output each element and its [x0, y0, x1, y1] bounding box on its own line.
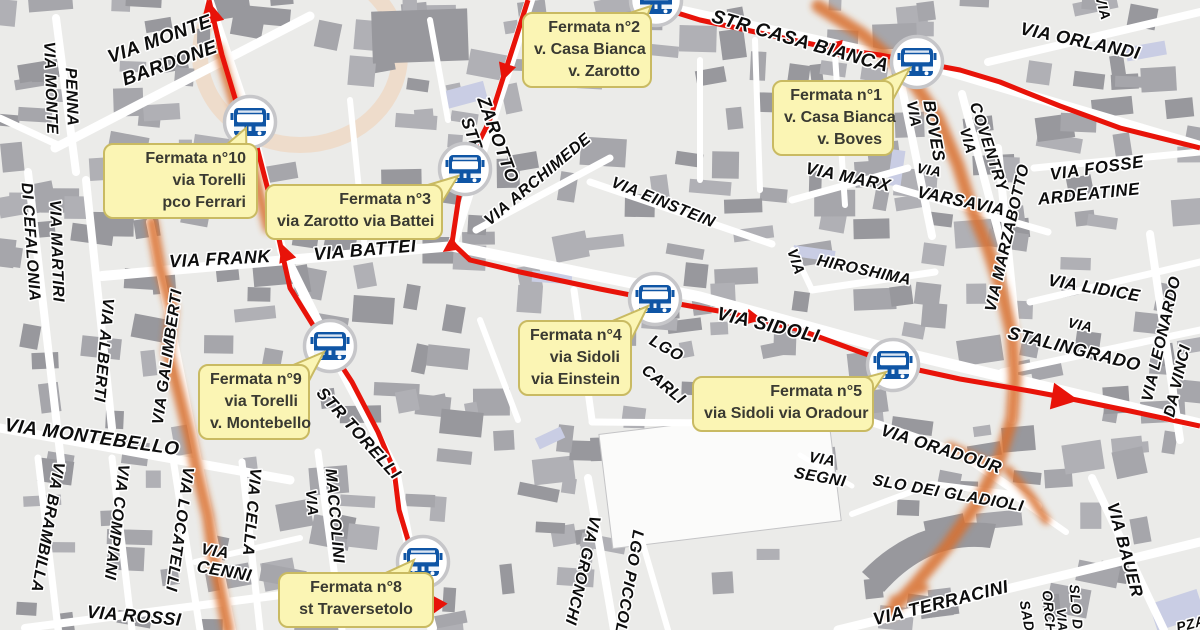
- stop-callout: Fermata n°1v. Casa Biancav. Boves: [772, 80, 894, 156]
- stop-callout-line: v. Zarotto: [534, 61, 640, 83]
- stop-callout-line: via Einstein: [530, 369, 620, 391]
- stop-callout-line: v. Montebello: [210, 413, 298, 435]
- stop-callout: Fermata n°9via Torelliv. Montebello: [198, 364, 310, 440]
- stop-callout-line: Fermata n°9: [210, 369, 298, 391]
- stop-callout-line: Fermata n°8: [290, 577, 422, 599]
- stop-callout-line: via Sidoli via Oradour: [704, 403, 862, 425]
- stop-callout-line: pco Ferrari: [115, 192, 246, 214]
- street-label: VIA: [1054, 608, 1071, 630]
- map-canvas: VIA MONTEBARDONEVIA MONTEPENNAVIA MARTIR…: [0, 0, 1200, 630]
- stop-callout-line: Fermata n°5: [704, 381, 862, 403]
- stop-callout-line: Fermata n°4: [530, 325, 620, 347]
- stop-callout-line: via Torelli: [210, 391, 298, 413]
- stop-callout: Fermata n°10via Torellipco Ferrari: [103, 143, 258, 219]
- stop-callout-line: Fermata n°2: [534, 17, 640, 39]
- street-label: VIA MARTIRI: [46, 200, 67, 303]
- stop-callout: Fermata n°5via Sidoli via Oradour: [692, 376, 874, 432]
- stop-callout-line: via Torelli: [115, 170, 246, 192]
- stop-callout: Fermata n°8st Traversetolo: [278, 572, 434, 628]
- street-label: VIA: [302, 489, 321, 517]
- stop-callout-line: Fermata n°3: [277, 189, 431, 211]
- stop-callout-line: st Traversetolo: [290, 599, 422, 621]
- stop-callout-line: Fermata n°1: [784, 85, 882, 107]
- bus-stops-map: VIA MONTEBARDONEVIA MONTEPENNAVIA MARTIR…: [0, 0, 1200, 630]
- stop-callout: Fermata n°4via Sidolivia Einstein: [518, 320, 632, 396]
- stop-callout-line: v. Casa Bianca: [784, 107, 882, 129]
- street-label: PENNA: [62, 67, 81, 126]
- stop-callout: Fermata n°2v. Casa Biancav. Zarotto: [522, 12, 652, 88]
- stop-callout-line: Fermata n°10: [115, 148, 246, 170]
- stop-callout-line: v. Boves: [784, 129, 882, 151]
- street-label: VIA MONTE: [40, 41, 60, 135]
- stop-callout: Fermata n°3via Zarotto via Battei: [265, 184, 443, 240]
- stop-callout-line: via Sidoli: [530, 347, 620, 369]
- stop-callout-line: v. Casa Bianca: [534, 39, 640, 61]
- stop-callout-line: via Zarotto via Battei: [277, 211, 431, 233]
